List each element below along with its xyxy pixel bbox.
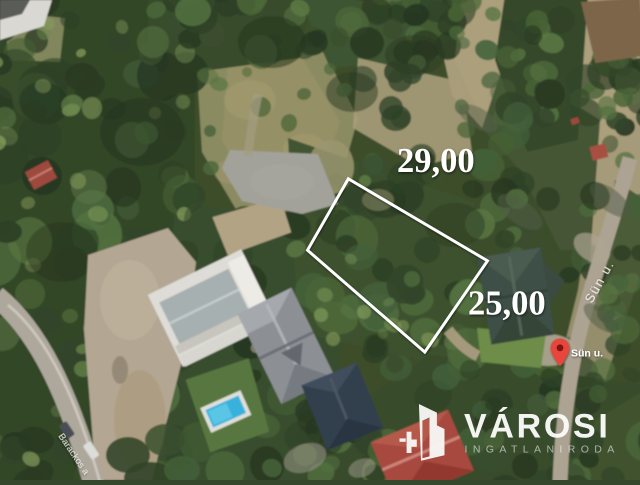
svg-text:Sün u.: Sün u. [571, 348, 603, 360]
svg-text:25,00: 25,00 [468, 285, 546, 323]
svg-text:INGATLANIRODA: INGATLANIRODA [465, 443, 620, 455]
svg-text:VÁROSI: VÁROSI [464, 408, 611, 446]
svg-text:29,00: 29,00 [397, 142, 475, 180]
